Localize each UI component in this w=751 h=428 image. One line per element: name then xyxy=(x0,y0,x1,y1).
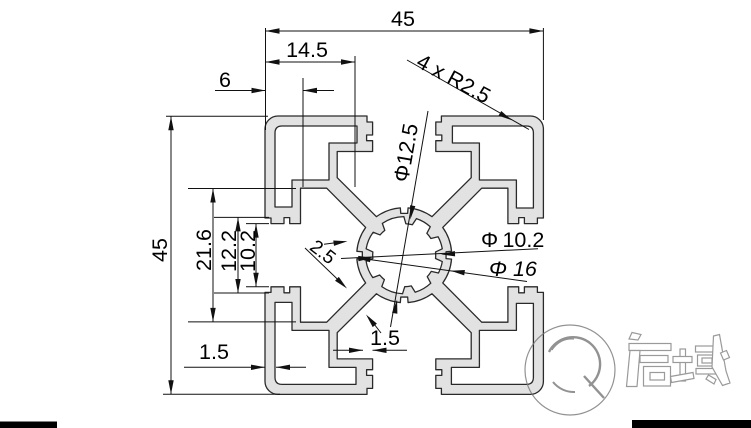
svg-text:14.5: 14.5 xyxy=(286,38,328,62)
svg-text:45: 45 xyxy=(148,238,172,262)
svg-text:1.5: 1.5 xyxy=(370,326,400,350)
svg-text:6: 6 xyxy=(219,68,231,92)
svg-text:45: 45 xyxy=(391,7,415,31)
svg-text:21.6: 21.6 xyxy=(192,229,216,271)
svg-text:Φ 16: Φ 16 xyxy=(489,257,537,281)
svg-text:10.2: 10.2 xyxy=(236,230,260,272)
svg-text:1.5: 1.5 xyxy=(199,340,229,364)
svg-text:Φ 10.2: Φ 10.2 xyxy=(481,228,544,252)
